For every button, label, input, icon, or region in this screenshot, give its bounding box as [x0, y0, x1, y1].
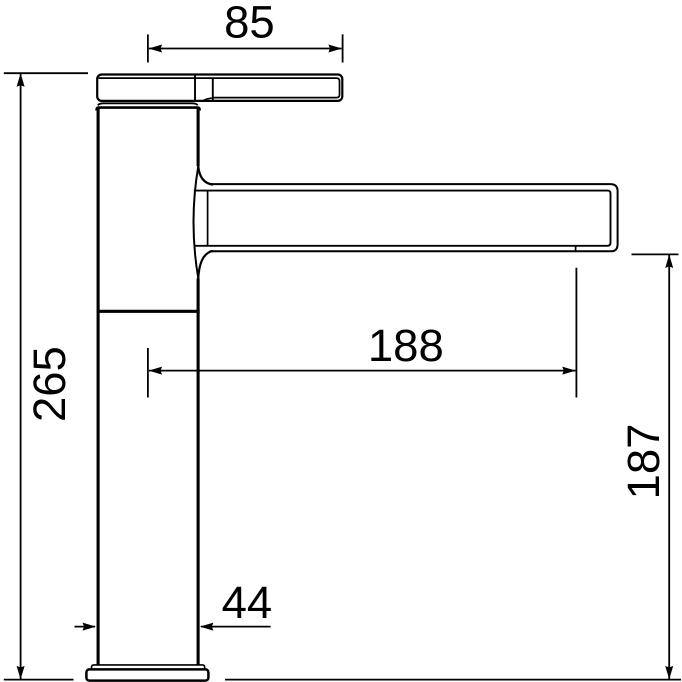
svg-text:265: 265: [24, 346, 75, 422]
svg-text:187: 187: [618, 424, 669, 500]
svg-text:44: 44: [222, 577, 273, 628]
svg-text:85: 85: [224, 0, 275, 48]
svg-text:188: 188: [368, 320, 444, 371]
